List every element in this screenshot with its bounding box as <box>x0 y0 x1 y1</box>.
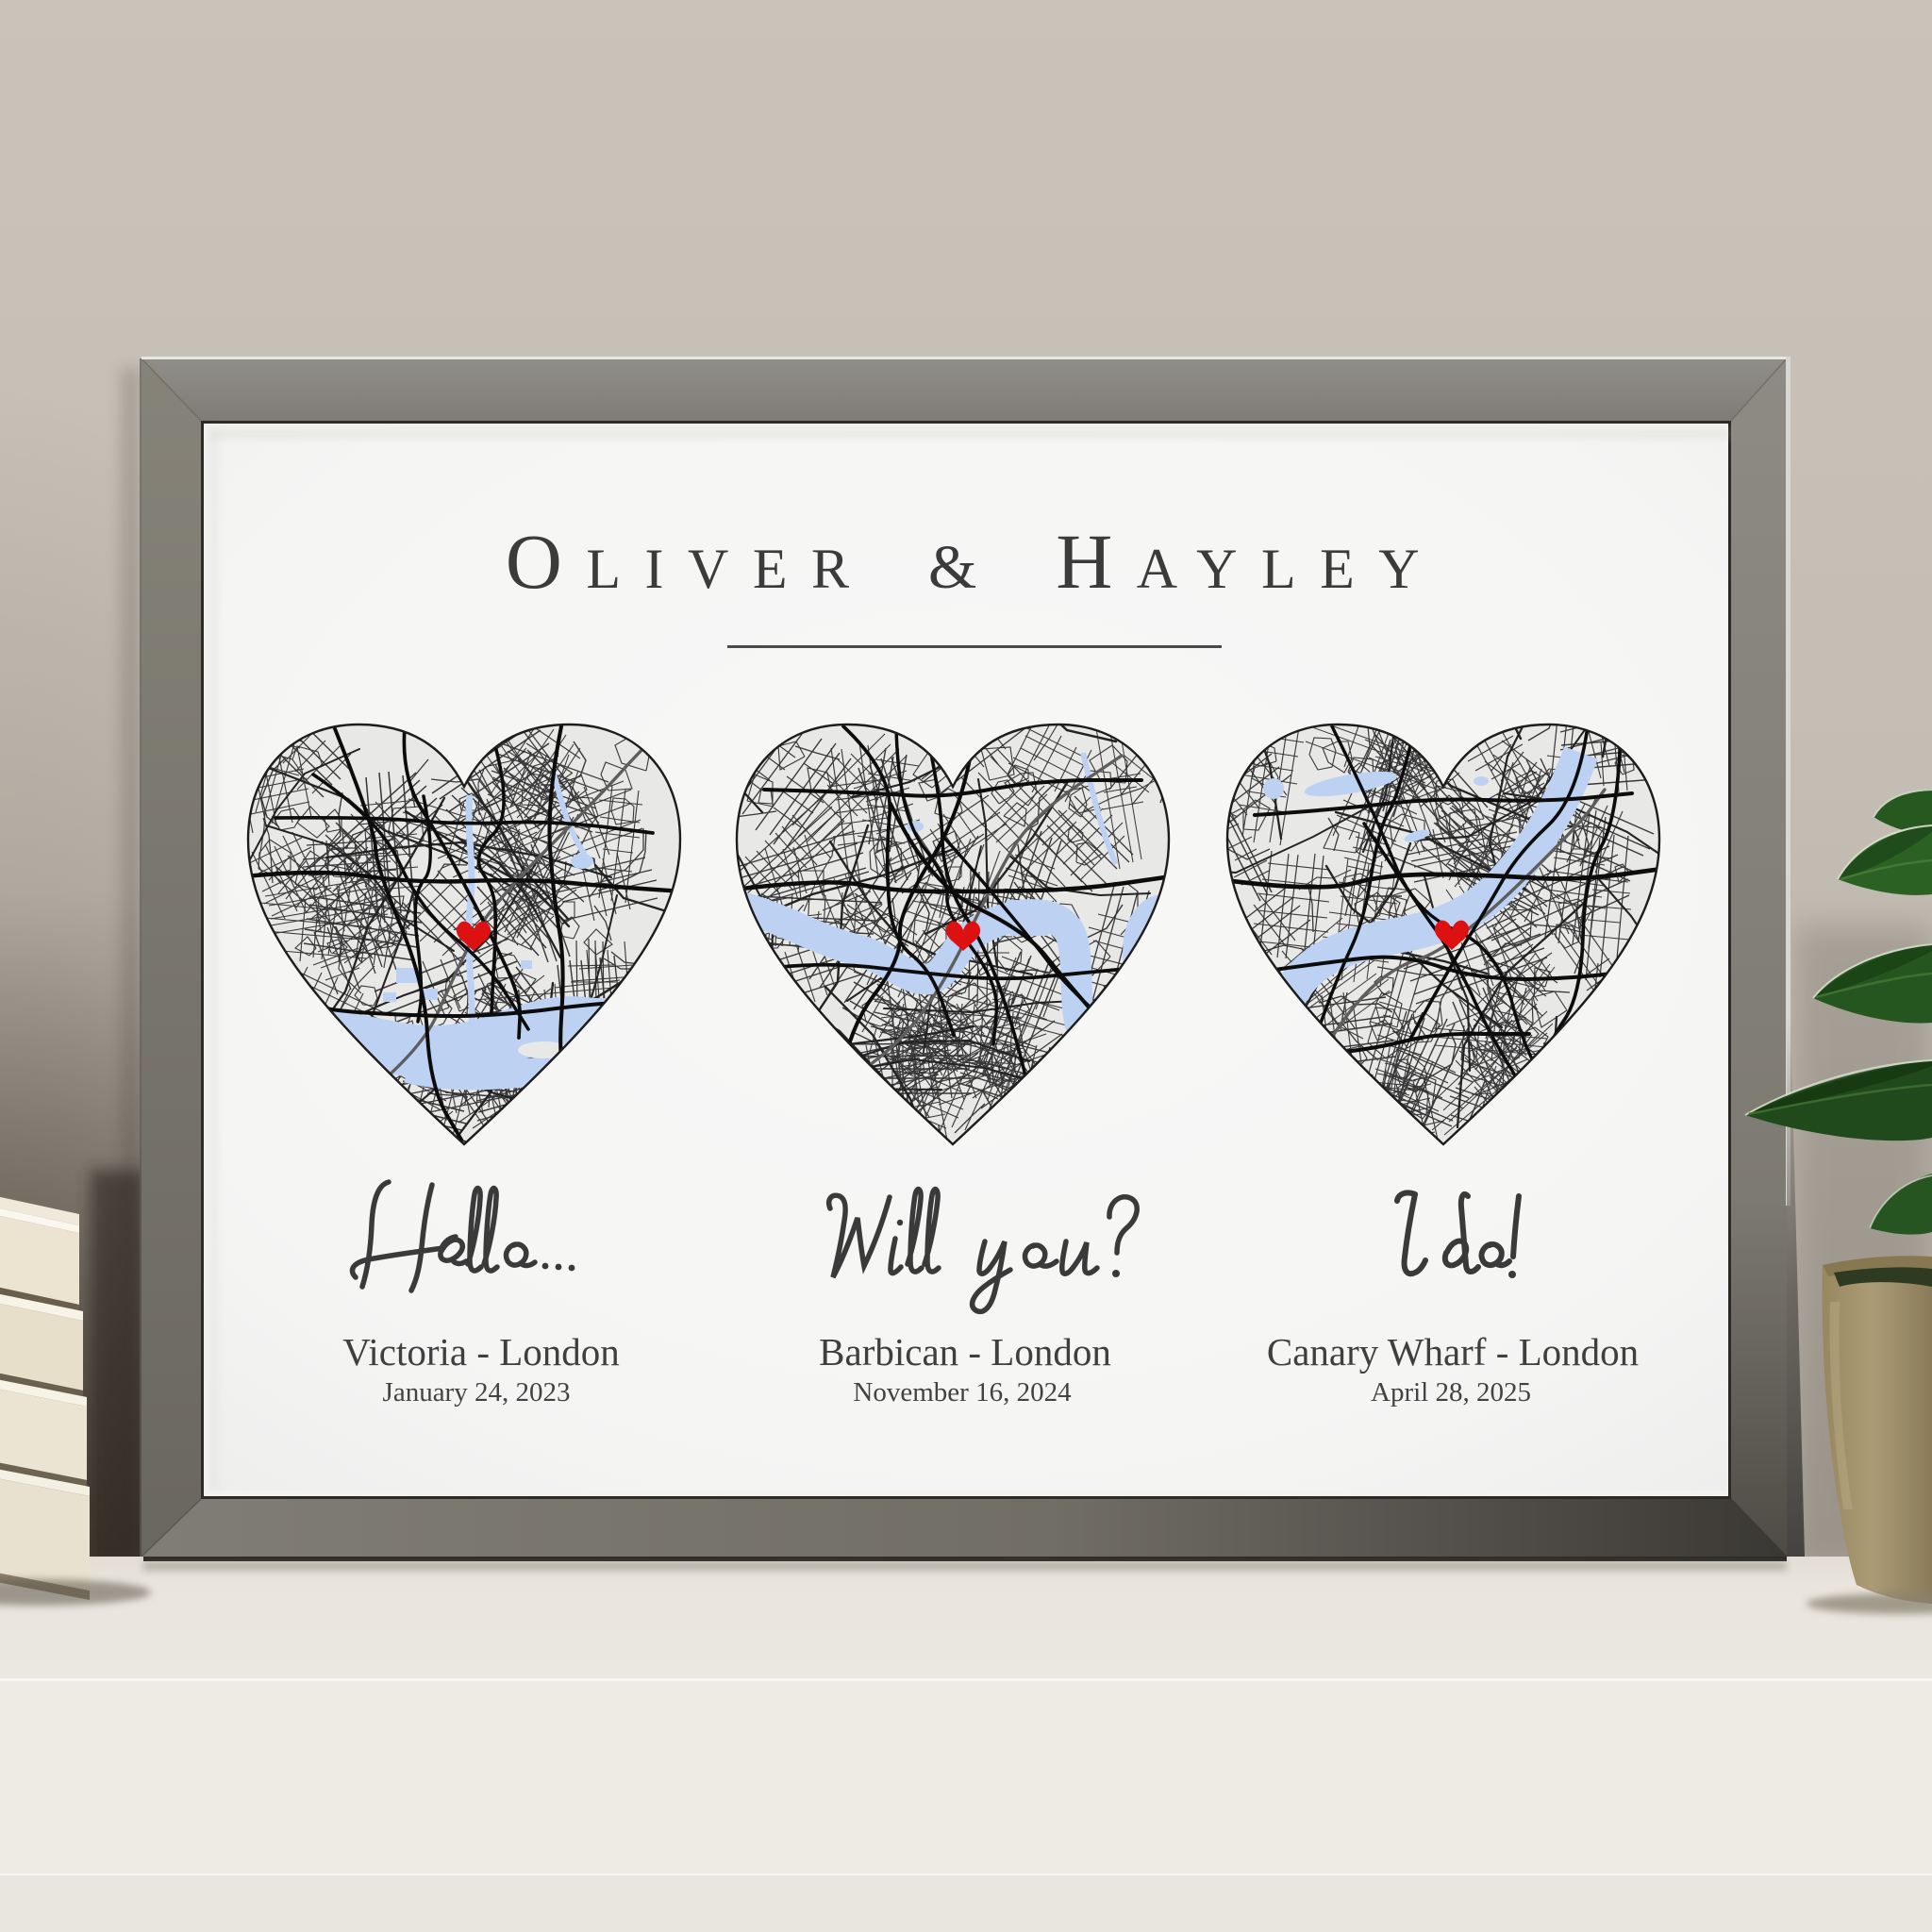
svg-text:November 16, 2024: November 16, 2024 <box>853 1377 1072 1407</box>
svg-text:April 28, 2025: April 28, 2025 <box>1371 1377 1531 1407</box>
svg-text:Barbican - London: Barbican - London <box>819 1330 1111 1374</box>
svg-text:January 24, 2023: January 24, 2023 <box>383 1377 571 1407</box>
svg-text:Victoria - London: Victoria - London <box>342 1330 620 1374</box>
svg-text:Canary Wharf - London: Canary Wharf - London <box>1267 1330 1639 1374</box>
